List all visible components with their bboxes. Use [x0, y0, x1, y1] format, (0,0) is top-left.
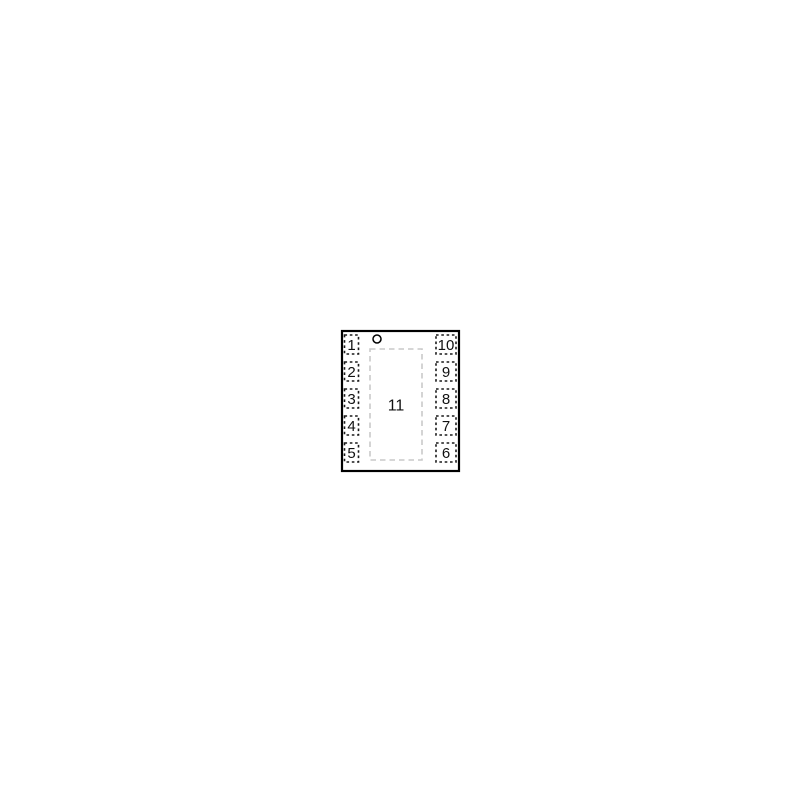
pin-label-7: 7 [442, 418, 450, 435]
package-pinout-diagram: 1 2 3 4 5 10 9 8 7 6 11 [0, 0, 800, 800]
pin-label-6: 6 [442, 445, 450, 462]
pin-label-4: 4 [347, 418, 355, 435]
pin-label-5: 5 [347, 445, 355, 462]
pin-label-1: 1 [347, 337, 355, 354]
pin-label-2: 2 [347, 364, 355, 381]
page-background: 1 2 3 4 5 10 9 8 7 6 11 [0, 0, 800, 800]
pin-label-10: 10 [438, 337, 455, 354]
exposed-pad-label: 11 [388, 398, 405, 415]
pin-label-8: 8 [442, 391, 450, 408]
pin-label-9: 9 [442, 364, 450, 381]
pin-1-indicator-icon [373, 335, 381, 343]
pin-label-3: 3 [347, 391, 355, 408]
